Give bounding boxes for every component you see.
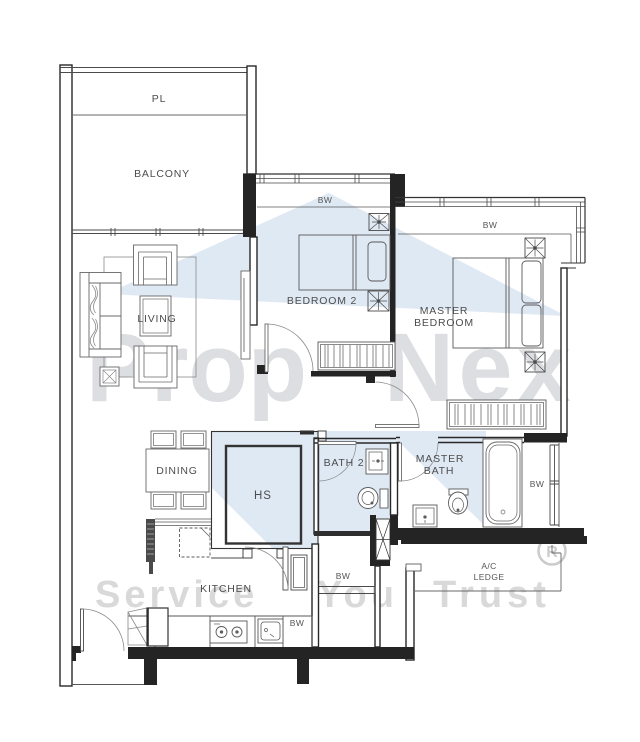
svg-text:A/C: A/C (481, 561, 496, 571)
svg-text:BW: BW (318, 195, 333, 205)
svg-text:BW: BW (336, 571, 351, 581)
svg-text:BATH 2: BATH 2 (324, 457, 365, 469)
svg-text:DINING: DINING (156, 465, 198, 477)
svg-text:BATH: BATH (424, 465, 454, 477)
svg-text:LIVING: LIVING (137, 313, 176, 325)
svg-text:MASTER: MASTER (420, 305, 469, 317)
svg-text:BEDROOM 2: BEDROOM 2 (287, 295, 357, 307)
svg-text:You: You (317, 574, 398, 616)
svg-text:BW: BW (530, 479, 545, 489)
svg-text:MASTER: MASTER (416, 453, 465, 465)
svg-text:Service: Service (95, 574, 258, 616)
svg-text:PL: PL (152, 93, 166, 105)
svg-text:HS: HS (254, 490, 272, 502)
svg-text:LEDGE: LEDGE (474, 572, 505, 582)
svg-text:BW: BW (290, 618, 305, 628)
svg-text:BEDROOM: BEDROOM (414, 317, 474, 329)
svg-text:KITCHEN: KITCHEN (200, 583, 252, 595)
svg-text:BALCONY: BALCONY (134, 168, 190, 180)
svg-text:BW: BW (483, 220, 498, 230)
